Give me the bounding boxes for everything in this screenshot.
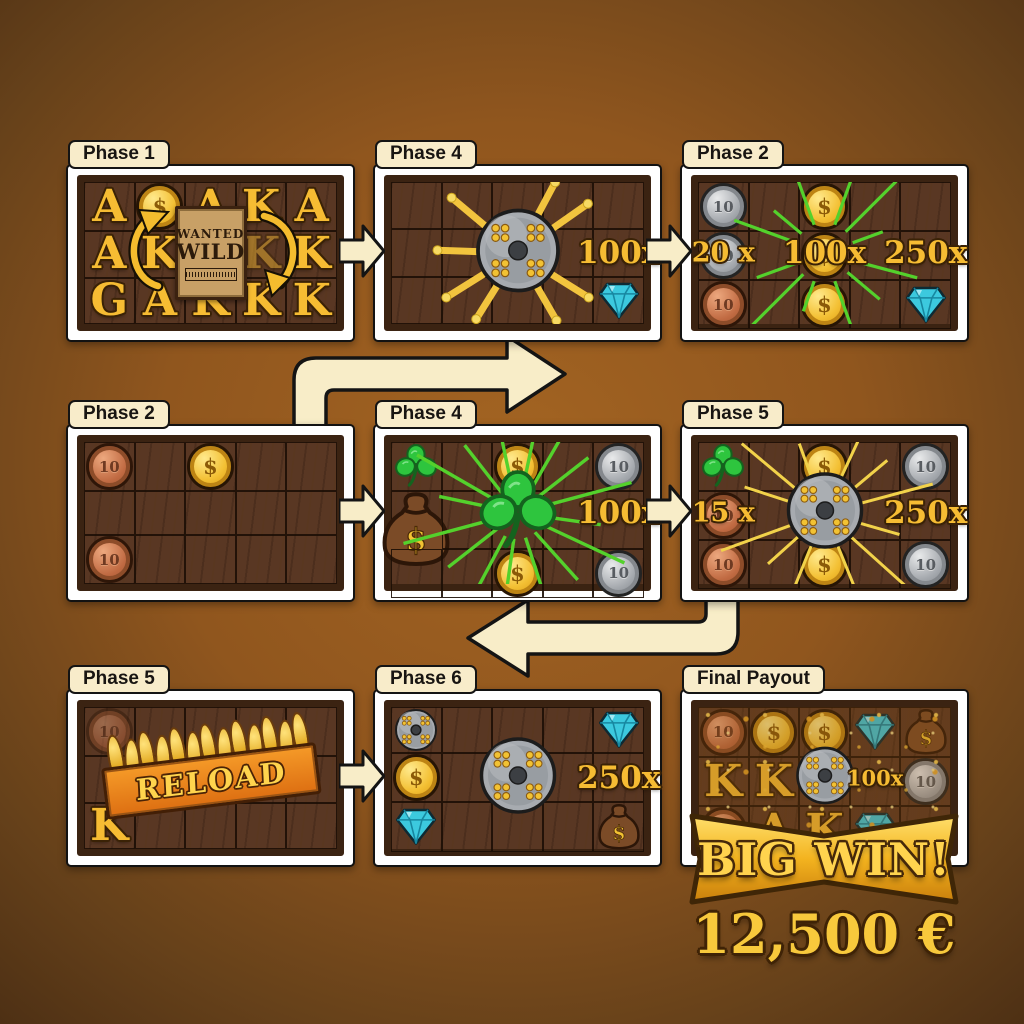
phase-label: Phase 5 bbox=[682, 400, 784, 429]
grid-cell bbox=[850, 280, 901, 329]
coin-value: 10 bbox=[608, 458, 629, 476]
coin-value: 10 bbox=[915, 556, 936, 574]
diamond-icon bbox=[394, 807, 438, 847]
coin-value: $ bbox=[817, 194, 832, 219]
symbol-letter-A: A bbox=[295, 185, 329, 229]
grid-cell: 10 bbox=[698, 280, 749, 329]
grid-cell bbox=[900, 182, 951, 231]
center-symbol bbox=[786, 472, 863, 554]
symbol-silver-coin: 10 bbox=[595, 443, 642, 490]
revolver-cylinder-icon bbox=[394, 708, 438, 752]
diamond-icon bbox=[853, 712, 897, 752]
coin-value: $ bbox=[409, 765, 424, 790]
phase-label: Final Payout bbox=[682, 665, 825, 694]
grid-cell: 10 bbox=[698, 707, 749, 757]
slot-board: A$AKAAKKKGAKKK WANTED WILD bbox=[77, 175, 344, 331]
grid-cell bbox=[286, 535, 337, 584]
grid-cell bbox=[286, 491, 337, 535]
symbol-letter-K: K bbox=[242, 279, 280, 323]
center-symbol: WANTED WILD bbox=[175, 206, 247, 300]
big-win-text: BIG WIN! bbox=[697, 833, 951, 886]
symbol-gold-coin: $ bbox=[750, 709, 797, 756]
revolver-cylinder-icon bbox=[479, 737, 556, 814]
multiplier-badge: 20 x bbox=[692, 238, 755, 269]
slot-board: $101010$10 15 x250x bbox=[691, 435, 958, 591]
symbol-copper-coin: 10 bbox=[700, 541, 747, 588]
multiplier-badge: 250x bbox=[577, 760, 660, 796]
phase-label: Phase 2 bbox=[682, 140, 784, 169]
coin-value: 10 bbox=[99, 551, 120, 569]
grid-cell bbox=[391, 707, 442, 753]
coin-value: 10 bbox=[608, 564, 629, 582]
wanted-wild-poster: WANTED WILD bbox=[175, 206, 247, 300]
coin-value: $ bbox=[153, 194, 168, 219]
multiplier-badge: 100x bbox=[847, 766, 903, 791]
phase-label: Phase 1 bbox=[68, 140, 170, 169]
grid-cell bbox=[391, 229, 442, 276]
slot-board: $10 $$10 100x bbox=[384, 435, 651, 591]
diamond-icon bbox=[597, 281, 641, 321]
grid-cell bbox=[850, 707, 901, 757]
step-arrow-right bbox=[339, 484, 385, 543]
coin-value: 10 bbox=[915, 773, 936, 791]
slot-grid: 10$10 bbox=[84, 442, 337, 584]
slot-board: 10K RELOAD bbox=[77, 700, 344, 856]
grid-cell bbox=[698, 442, 749, 491]
grid-cell bbox=[593, 182, 644, 229]
slot-board: 10$10$10$ 20 x100x250x bbox=[691, 175, 958, 331]
payout-amount: 12,500 € bbox=[686, 902, 962, 966]
symbol-copper-coin: 10 bbox=[700, 281, 747, 328]
phase-label: Phase 6 bbox=[375, 665, 477, 694]
grid-cell bbox=[900, 280, 951, 329]
grid-cell bbox=[850, 182, 901, 231]
grid-cell bbox=[749, 182, 800, 231]
grid-cell bbox=[442, 549, 493, 598]
coin-value: $ bbox=[817, 292, 832, 317]
phase-label: Phase 5 bbox=[68, 665, 170, 694]
symbol-silver-coin: 10 bbox=[700, 183, 747, 230]
symbol-silver-coin: 10 bbox=[902, 758, 949, 805]
center-symbol bbox=[479, 470, 556, 556]
grid-cell bbox=[391, 802, 442, 852]
grid-cell: K bbox=[698, 757, 749, 806]
panel-phase-4-1: Phase 4 100x bbox=[373, 164, 662, 342]
panel-phase-6-7: Phase 6 $ $ 250x bbox=[373, 689, 662, 867]
grid-cell bbox=[185, 535, 236, 584]
slot-board: 10$10 bbox=[77, 435, 344, 591]
symbol-copper-coin: 10 bbox=[86, 443, 133, 490]
panel-phase-1-0: Phase 1 A$AKAAKKKGAKKK WANTED WILD bbox=[66, 164, 355, 342]
coin-value: 10 bbox=[713, 556, 734, 574]
symbol-silver-coin: 10 bbox=[902, 541, 949, 588]
grid-cell bbox=[236, 535, 287, 584]
coin-value: $ bbox=[817, 720, 832, 745]
grid-cell bbox=[185, 491, 236, 535]
grid-cell bbox=[391, 182, 442, 229]
symbol-letter-K: K bbox=[141, 232, 179, 276]
clover-icon bbox=[395, 444, 437, 488]
grid-cell: 10 bbox=[900, 757, 951, 806]
coin-value: 10 bbox=[713, 296, 734, 314]
symbol-letter-K: K bbox=[755, 760, 793, 804]
coin-value: 10 bbox=[713, 198, 734, 216]
panel-phase-5-6: Phase 5 10K RELOAD bbox=[66, 689, 355, 867]
grid-cell: $ bbox=[749, 707, 800, 757]
poster-fine-print bbox=[185, 268, 237, 281]
grid-cell: 10 bbox=[84, 442, 135, 491]
symbol-copper-coin: 10 bbox=[700, 709, 747, 756]
multiplier-badge: 100x bbox=[783, 235, 866, 271]
panel-phase-2-2: Phase 2 10$10$10$ 20 x100x250x bbox=[680, 164, 969, 342]
grid-cell: $ bbox=[900, 707, 951, 757]
symbol-letter-K: K bbox=[293, 232, 331, 276]
grid-cell: 10 bbox=[84, 535, 135, 584]
symbol-letter-K: K bbox=[293, 279, 331, 323]
grid-cell: 10 bbox=[900, 540, 951, 589]
symbol-letter-A: A bbox=[92, 185, 126, 229]
grid-cell bbox=[391, 549, 442, 598]
grid-cell bbox=[391, 277, 442, 324]
phase-label: Phase 4 bbox=[375, 140, 477, 169]
center-symbol bbox=[476, 209, 560, 298]
step-arrow-right bbox=[646, 224, 692, 283]
grid-cell bbox=[135, 535, 186, 584]
grid-cell bbox=[236, 491, 287, 535]
multiplier-badge: 250x bbox=[884, 495, 967, 531]
grid-cell: 10 bbox=[593, 549, 644, 598]
grid-cell: G bbox=[84, 278, 135, 325]
grid-cell bbox=[593, 707, 644, 753]
phase-label: Phase 4 bbox=[375, 400, 477, 429]
grid-cell: 10 bbox=[593, 442, 644, 491]
multiplier-badge: 250x bbox=[884, 235, 967, 271]
multiplier-badge: 15 x bbox=[692, 498, 755, 529]
symbol-copper-coin: 10 bbox=[86, 536, 133, 583]
symbol-letter-K: K bbox=[242, 232, 280, 276]
symbol-letter-G: G bbox=[91, 279, 129, 323]
grid-cell: $ bbox=[799, 182, 850, 231]
grid-cell bbox=[593, 277, 644, 324]
symbol-letter-A: A bbox=[143, 279, 177, 323]
grid-cell bbox=[236, 442, 287, 491]
grid-cell: $ bbox=[391, 491, 442, 549]
grid-cell: A bbox=[84, 182, 135, 231]
clover-icon bbox=[702, 444, 744, 488]
coin-value: 10 bbox=[915, 458, 936, 476]
revolver-cylinder-icon bbox=[795, 746, 854, 805]
phase-label: Phase 2 bbox=[68, 400, 170, 429]
svg-text:$: $ bbox=[612, 822, 625, 845]
coin-value: 10 bbox=[713, 723, 734, 741]
grid-cell bbox=[543, 549, 594, 598]
coin-value: $ bbox=[203, 454, 218, 479]
grid-cell: K bbox=[749, 757, 800, 806]
grid-cell: 10 bbox=[900, 442, 951, 491]
grid-cell: 10 bbox=[698, 182, 749, 231]
symbol-letter-A: A bbox=[92, 232, 126, 276]
grid-cell: $ bbox=[492, 549, 543, 598]
symbol-gold-coin: $ bbox=[187, 443, 234, 490]
symbol-gold-coin: $ bbox=[494, 550, 541, 597]
step-arrow-right bbox=[339, 749, 385, 808]
panel-phase-2-3: Phase 2 10$10 bbox=[66, 424, 355, 602]
grid-cell bbox=[391, 442, 442, 491]
symbol-gold-coin: $ bbox=[393, 754, 440, 801]
grid-cell: $ bbox=[185, 442, 236, 491]
flow-arrow-row2-to-row3 bbox=[468, 596, 738, 676]
grid-cell: $ bbox=[593, 802, 644, 852]
symbol-silver-coin: 10 bbox=[902, 443, 949, 490]
grid-cell bbox=[84, 491, 135, 535]
poster-line2: WILD bbox=[176, 241, 244, 263]
center-symbol bbox=[795, 746, 854, 810]
symbol-letter-K: K bbox=[242, 185, 280, 229]
symbol-gold-coin: $ bbox=[801, 183, 848, 230]
grid-cell: A bbox=[286, 182, 337, 231]
coin-value: $ bbox=[767, 720, 782, 745]
big-win-banner: BIG WIN! bbox=[686, 808, 962, 910]
grid-cell: K bbox=[286, 231, 337, 278]
svg-text:$: $ bbox=[919, 727, 932, 750]
grid-cell bbox=[135, 491, 186, 535]
symbol-silver-coin: 10 bbox=[595, 550, 642, 597]
grid-cell: $ bbox=[391, 753, 442, 802]
coin-value: $ bbox=[817, 552, 832, 577]
grid-cell bbox=[135, 442, 186, 491]
grid-cell bbox=[286, 442, 337, 491]
clover-icon bbox=[479, 470, 556, 551]
step-arrow-right bbox=[646, 484, 692, 543]
panel-phase-4-4: Phase 4 $10 $$10 100x bbox=[373, 424, 662, 602]
moneybag-icon: $ bbox=[597, 803, 641, 851]
slot-board: 100x bbox=[384, 175, 651, 331]
grid-cell: A bbox=[84, 231, 135, 278]
step-arrow-right bbox=[339, 224, 385, 283]
coin-value: 10 bbox=[99, 458, 120, 476]
diamond-icon bbox=[904, 285, 948, 325]
panel-phase-5-5: Phase 5 $101010$10 15 x250x bbox=[680, 424, 969, 602]
grid-cell: 10 bbox=[698, 540, 749, 589]
coin-value: $ bbox=[510, 561, 525, 586]
grid-cell bbox=[749, 280, 800, 329]
grid-cell: K bbox=[286, 278, 337, 325]
moneybag-icon: $ bbox=[904, 708, 948, 756]
grid-cell: $ bbox=[799, 280, 850, 329]
revolver-cylinder-icon bbox=[786, 472, 863, 549]
symbol-gold-coin: $ bbox=[801, 281, 848, 328]
revolver-cylinder-icon bbox=[476, 209, 560, 293]
slot-board: $ $ 250x bbox=[384, 700, 651, 856]
reload-label: RELOAD bbox=[135, 755, 287, 808]
center-symbol bbox=[479, 737, 556, 819]
diamond-icon bbox=[597, 710, 641, 750]
symbol-letter-K: K bbox=[704, 760, 742, 804]
